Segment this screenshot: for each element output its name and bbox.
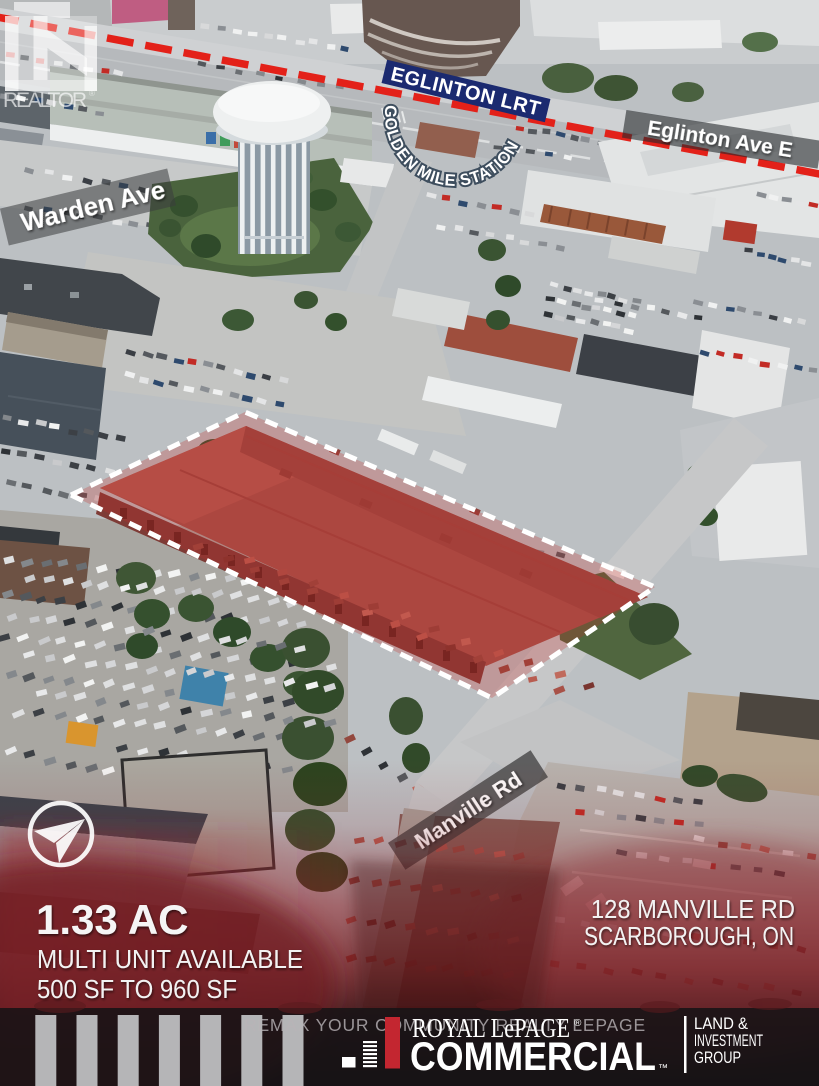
svg-text:™: ™ [658,1063,668,1074]
svg-text:128 MANVILLE RD: 128 MANVILLE RD [591,896,795,924]
svg-text:SCARBOROUGH, ON: SCARBOROUGH, ON [584,923,794,951]
svg-text:®: ® [89,89,95,98]
svg-text:COMMERCIAL: COMMERCIAL [410,1035,656,1079]
svg-text:MULTI UNIT AVAILABLE: MULTI UNIT AVAILABLE [37,946,303,974]
svg-text:GROUP: GROUP [694,1049,741,1067]
svg-text:1.33 AC: 1.33 AC [36,896,189,943]
svg-text:REALTOR: REALTOR [3,89,88,112]
svg-text:®: ® [574,1018,582,1029]
svg-text:LAND &: LAND & [694,1015,748,1033]
svg-text:500 SF TO 960 SF: 500 SF TO 960 SF [37,976,237,1004]
svg-text:INVESTMENT: INVESTMENT [694,1032,763,1050]
